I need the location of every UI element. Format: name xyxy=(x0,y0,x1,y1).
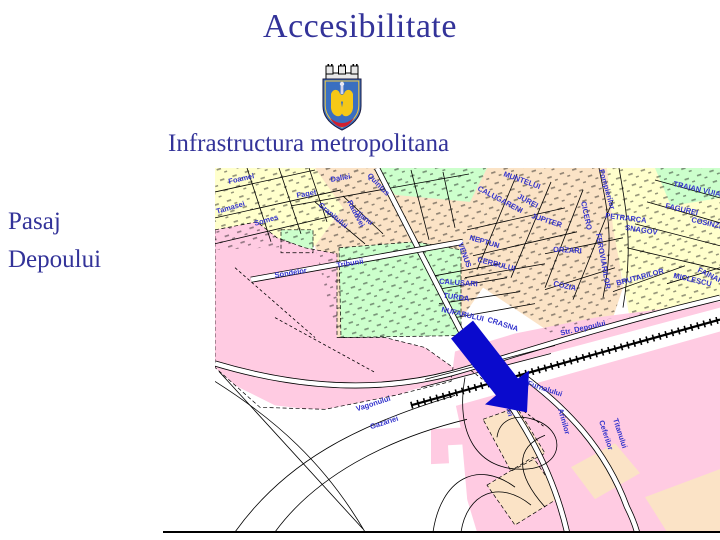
crest-shield xyxy=(323,79,361,130)
street-label: ORZARI xyxy=(553,245,582,255)
city-map: FoameiTamaseiSomesFagetDalieiGranituluiQ… xyxy=(215,168,720,532)
slide-subtitle: Infrastructura metropolitana xyxy=(168,130,449,158)
city-coat-of-arms-icon xyxy=(317,64,367,133)
slide-bottom-rule xyxy=(163,531,720,533)
side-label-line2: Depoului xyxy=(8,241,101,279)
side-label: Pasaj Depoului xyxy=(8,203,101,279)
slide-title: Accesibilitate xyxy=(0,8,720,46)
presentation-slide: Accesibilitate xyxy=(0,0,720,540)
crest-graphic xyxy=(317,64,367,132)
crest-mural-crown xyxy=(326,64,358,79)
map-graphic: FoameiTamaseiSomesFagetDalieiGranituluiQ… xyxy=(215,168,720,532)
side-label-line1: Pasaj xyxy=(8,203,101,241)
